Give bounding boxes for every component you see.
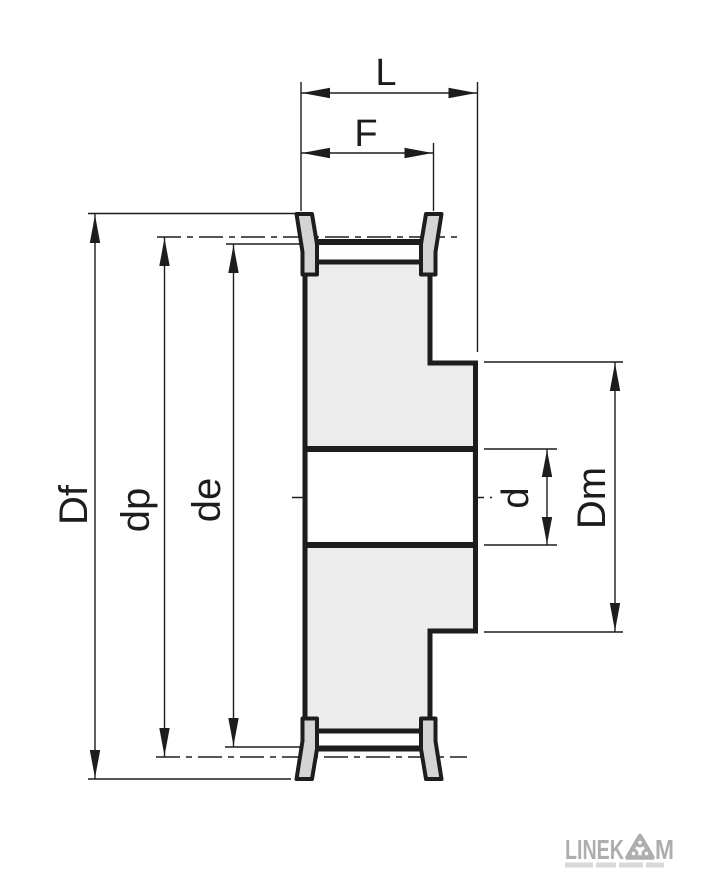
- f-right-arrow: [405, 148, 433, 158]
- emblem-hole-right: [645, 852, 649, 856]
- tagline-word-block: [565, 863, 593, 868]
- d-bottom-arrow: [542, 517, 552, 544]
- pulley-cross-section: [297, 214, 479, 779]
- dp-bottom-arrow: [159, 728, 169, 756]
- df-label: Df: [52, 484, 96, 525]
- flange-top-left: [297, 214, 318, 275]
- dm-label: Dm: [570, 467, 614, 529]
- l-left-arrow: [302, 88, 330, 98]
- flange-top-right: [421, 214, 442, 275]
- f-label: F: [354, 113, 377, 155]
- dm-top-arrow: [610, 363, 620, 391]
- logo: LINEK M: [565, 834, 674, 868]
- emblem-hole-left: [632, 852, 636, 856]
- tagline-word-block: [596, 863, 616, 868]
- de-label: de: [185, 478, 229, 523]
- de-bottom-arrow: [228, 718, 238, 746]
- logo-text-prefix: LINEK: [565, 834, 624, 865]
- dp-label: dp: [114, 488, 158, 533]
- diagram-canvas: L F Df dp de d Dm LINEK M: [0, 0, 712, 881]
- logo-emblem-icon: [628, 836, 653, 859]
- tagline-word-block: [646, 863, 664, 868]
- logo-text-suffix: M: [655, 834, 674, 865]
- df-top-arrow: [90, 215, 100, 243]
- dp-top-arrow: [159, 238, 169, 266]
- dm-bottom-arrow: [610, 603, 620, 631]
- df-bottom-arrow: [90, 750, 100, 778]
- emblem-hole-top: [638, 841, 642, 845]
- logo-wordmark: LINEK M: [565, 834, 674, 865]
- pulley-dimension-diagram: L F Df dp de d Dm LINEK M: [0, 0, 712, 881]
- l-right-arrow: [449, 88, 477, 98]
- flange-bottom-left: [297, 719, 318, 780]
- d-top-arrow: [542, 450, 552, 477]
- f-left-arrow: [302, 148, 330, 158]
- d-label: d: [495, 487, 537, 508]
- de-top-arrow: [228, 245, 238, 273]
- l-label: L: [375, 52, 396, 94]
- bore: [309, 452, 473, 542]
- tagline-word-block: [619, 863, 643, 868]
- logo-tagline-illegible: [565, 863, 664, 868]
- flange-bottom-right: [421, 719, 442, 780]
